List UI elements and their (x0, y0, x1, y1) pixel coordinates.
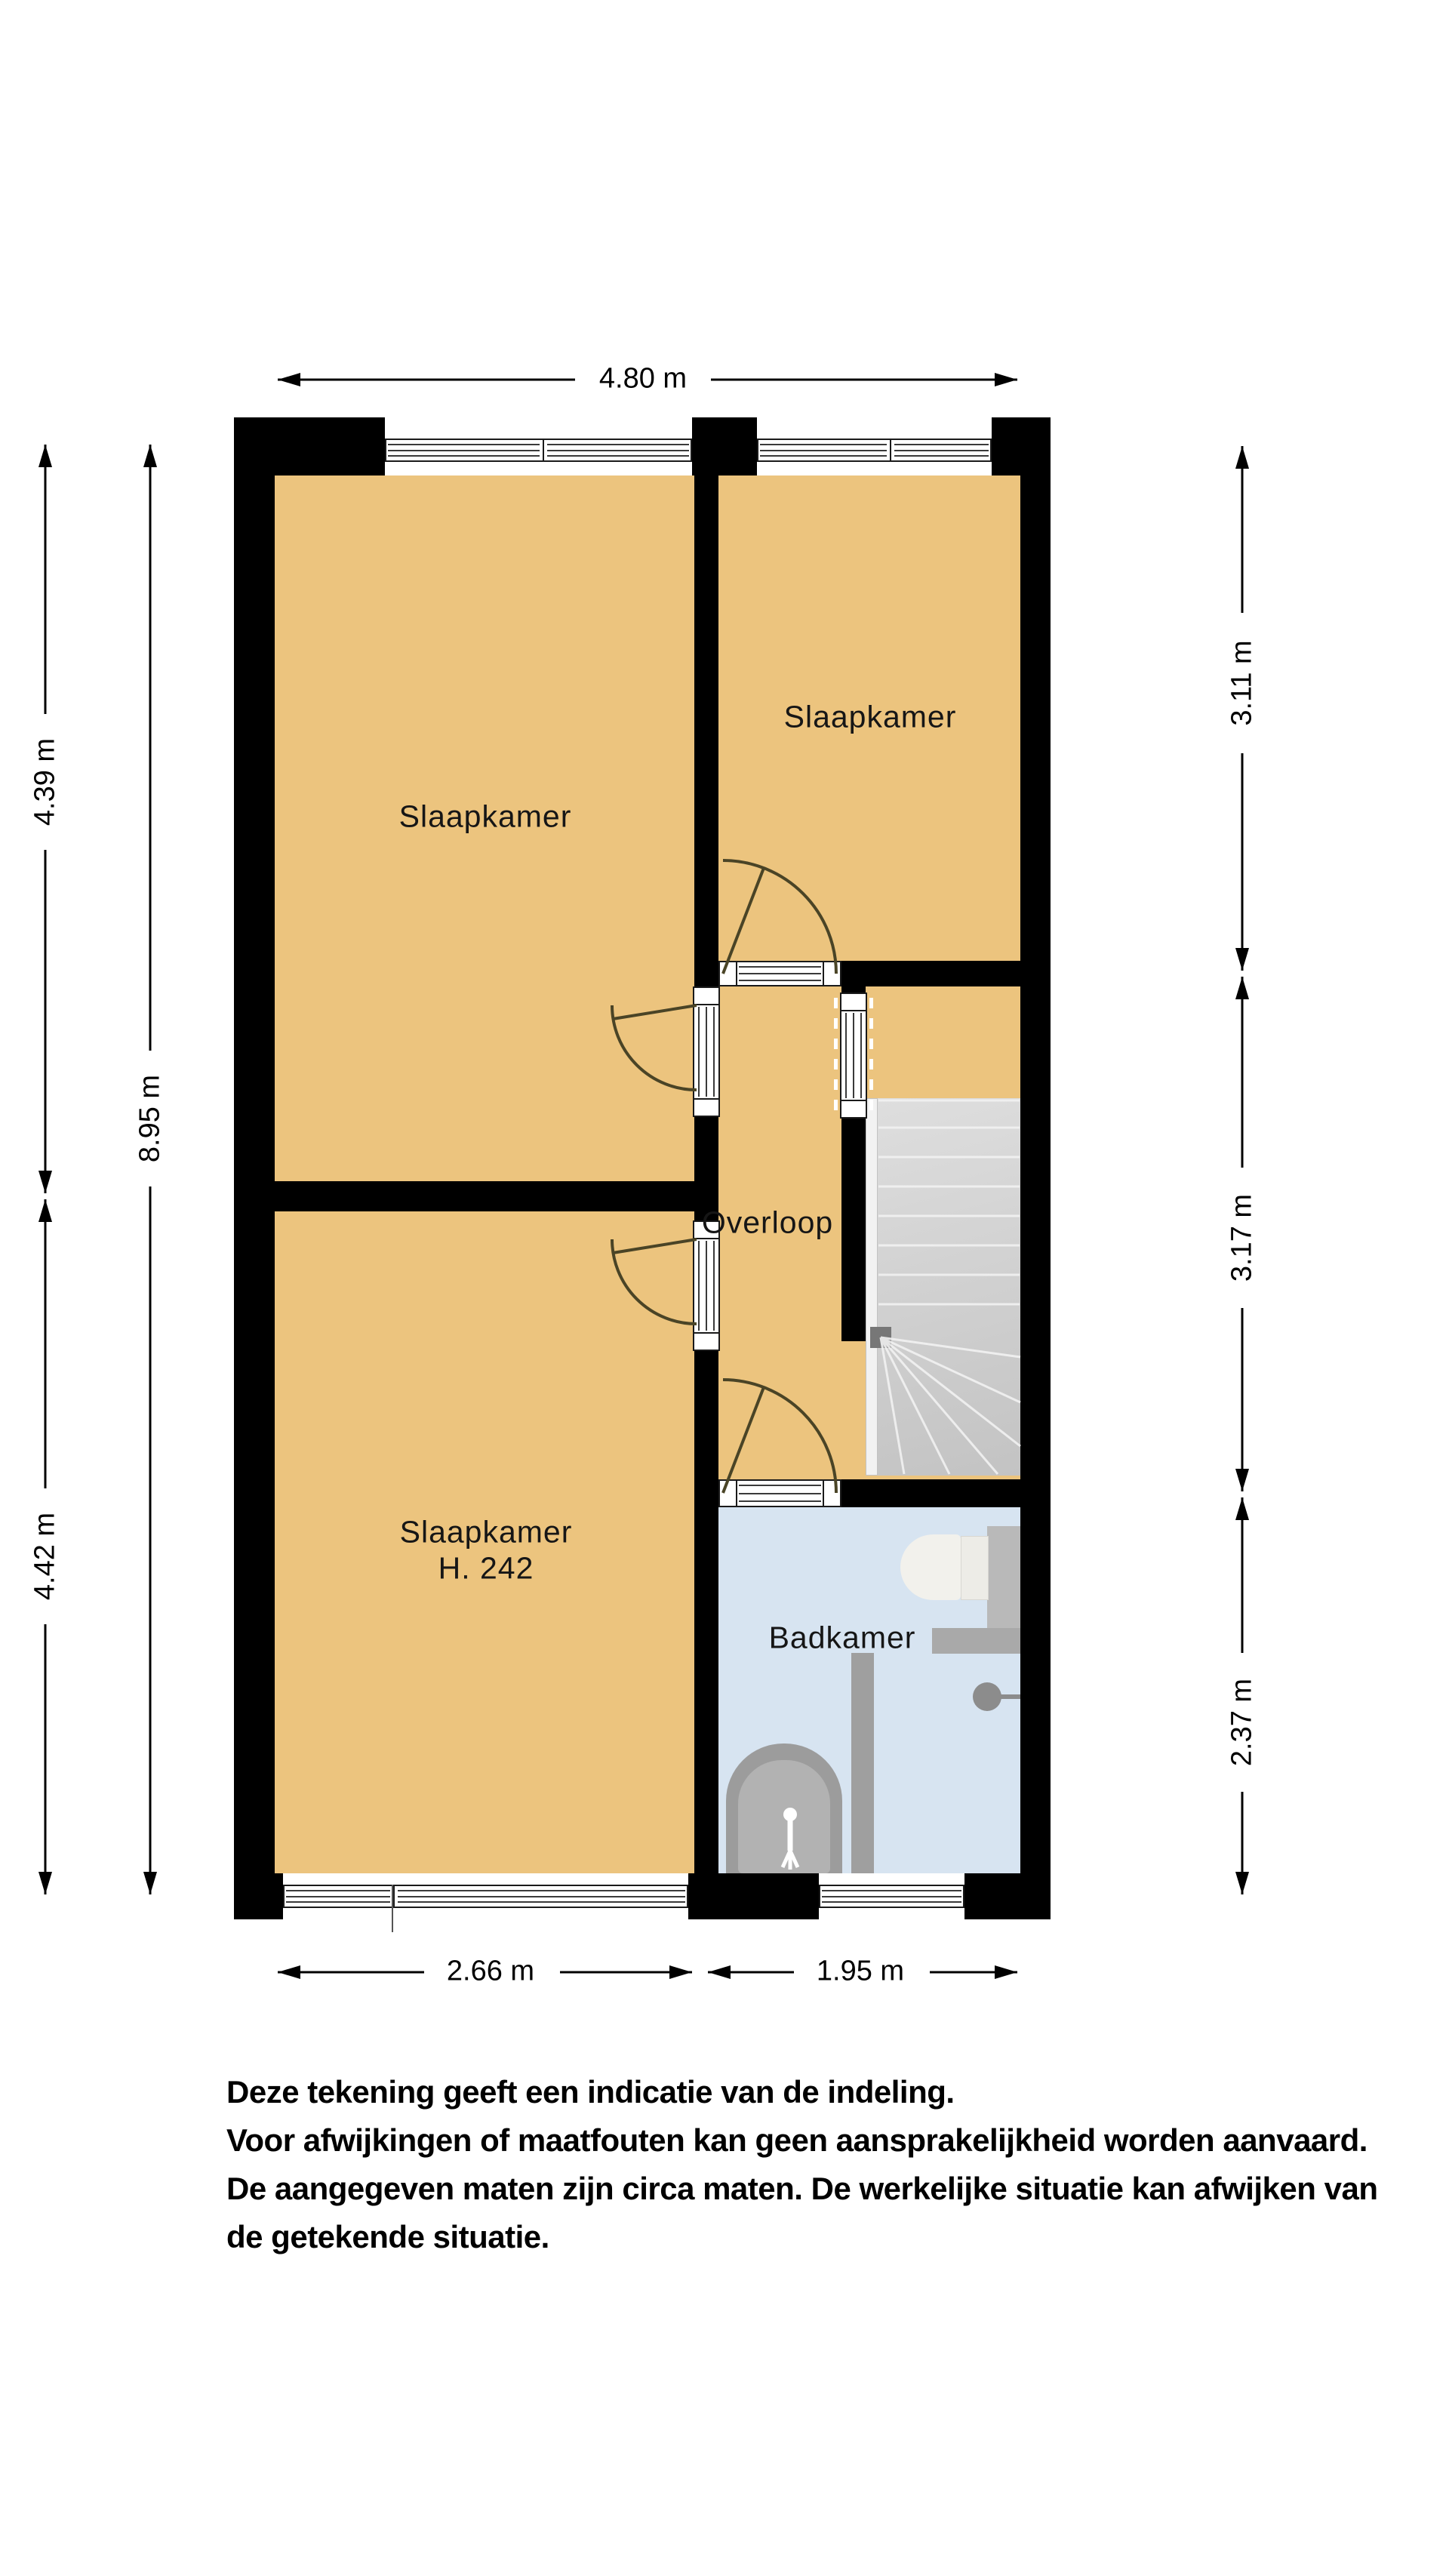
wall-bathroom-top (841, 1479, 1020, 1507)
wall-top-segment (692, 417, 757, 475)
dimension-label-right-upper: 3.11 m (1226, 640, 1259, 725)
floorplan-canvas: Slaapkamer Slaapkamer Slaapkamer H. 242 … (0, 0, 1449, 2576)
window-divider-line (392, 1885, 393, 1932)
dimension-label-top: 4.80 m (599, 363, 687, 395)
wall-stairwell-segment (841, 1119, 866, 1341)
wall-spine-segment (694, 475, 718, 986)
room-sublabel-height: H. 242 (438, 1551, 534, 1587)
disclaimer-line: de getekende situatie. (226, 2213, 1449, 2261)
dimension-label-left-upper: 4.39 m (29, 738, 62, 826)
dimension-label-bottom-right: 1.95 m (817, 1956, 904, 1988)
wall-spine-segment (694, 1351, 718, 1873)
wall-top-segment (992, 417, 1051, 475)
toilet-cistern (961, 1536, 989, 1600)
room-label-landing: Overloop (702, 1205, 833, 1241)
wall-right (1020, 417, 1051, 1919)
wall-stairwell-segment (841, 961, 866, 993)
dimension-label-right-lower: 2.37 m (1226, 1679, 1259, 1766)
wall-bottom-segment (964, 1873, 1051, 1919)
shower-screen (851, 1653, 874, 1873)
wall-left (234, 417, 275, 1919)
dimension-label-right-middle: 3.17 m (1226, 1194, 1259, 1282)
dimension-label-bottom-left: 2.66 m (447, 1956, 534, 1988)
wall-bedroom-divider (275, 1181, 694, 1211)
room-label-bathroom: Badkamer (769, 1620, 916, 1656)
radiator-shelf (932, 1628, 1020, 1654)
disclaimer-line: De aangegeven maten zijn circa maten. De… (226, 2165, 1449, 2213)
wall-top-segment (234, 417, 385, 475)
window-icon (819, 1885, 964, 1908)
window-icon (385, 439, 692, 462)
toilet-icon (900, 1534, 961, 1600)
stairs-stringer (866, 1098, 878, 1476)
wall-bottom-segment (688, 1873, 819, 1919)
disclaimer-line: Voor afwijkingen of maatfouten kan geen … (226, 2116, 1449, 2165)
stairs-newel-post (870, 1327, 891, 1348)
shower-head-icon (973, 1682, 1001, 1711)
window-icon (757, 439, 992, 462)
stairs-icon (878, 1098, 1020, 1476)
room-label-bedroom-bottom-left: Slaapkamer (400, 1515, 573, 1550)
wall-bedroom-topright-bottom (841, 961, 1020, 986)
room-label-bedroom-top-left: Slaapkamer (399, 799, 572, 835)
dimension-label-left-total: 8.95 m (134, 1075, 167, 1162)
dimension-label-left-lower: 4.42 m (29, 1513, 62, 1600)
toilet-backdrop (987, 1526, 1020, 1628)
disclaimer-line: Deze tekening geeft een indicatie van de… (226, 2068, 1449, 2116)
wall-bottom-segment (234, 1873, 283, 1919)
window-icon (283, 1885, 688, 1908)
room-label-bedroom-top-right: Slaapkamer (784, 700, 957, 735)
sink-basin (738, 1760, 830, 1873)
disclaimer-text: Deze tekening geeft een indicatie van de… (226, 2068, 1449, 2261)
